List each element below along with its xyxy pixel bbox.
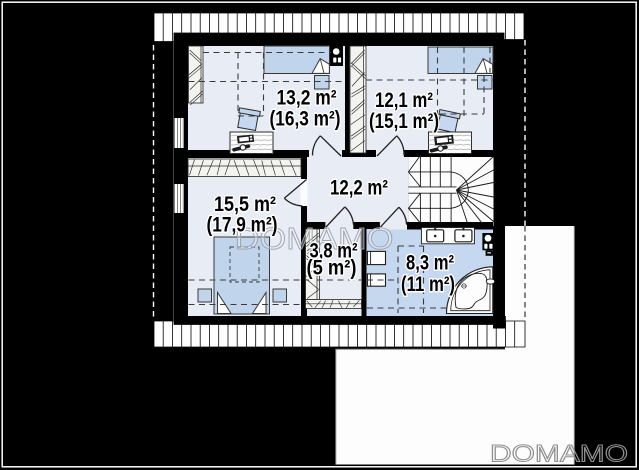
svg-text:8,3 m²: 8,3 m² bbox=[406, 252, 454, 275]
svg-text:12,1 m²: 12,1 m² bbox=[375, 89, 433, 112]
svg-text:12,2 m²: 12,2 m² bbox=[330, 177, 388, 200]
svg-text:(17,9 m²): (17,9 m²) bbox=[207, 214, 278, 237]
svg-text:(16,3 m²): (16,3 m²) bbox=[270, 108, 341, 131]
svg-text:(15,1 m²): (15,1 m²) bbox=[369, 110, 439, 133]
svg-text:(5 m²): (5 m²) bbox=[307, 257, 357, 280]
svg-text:(11 m²): (11 m²) bbox=[401, 273, 455, 296]
svg-text:DOMAMO: DOMAMO bbox=[490, 441, 628, 468]
svg-text:13,2 m²: 13,2 m² bbox=[277, 87, 337, 110]
